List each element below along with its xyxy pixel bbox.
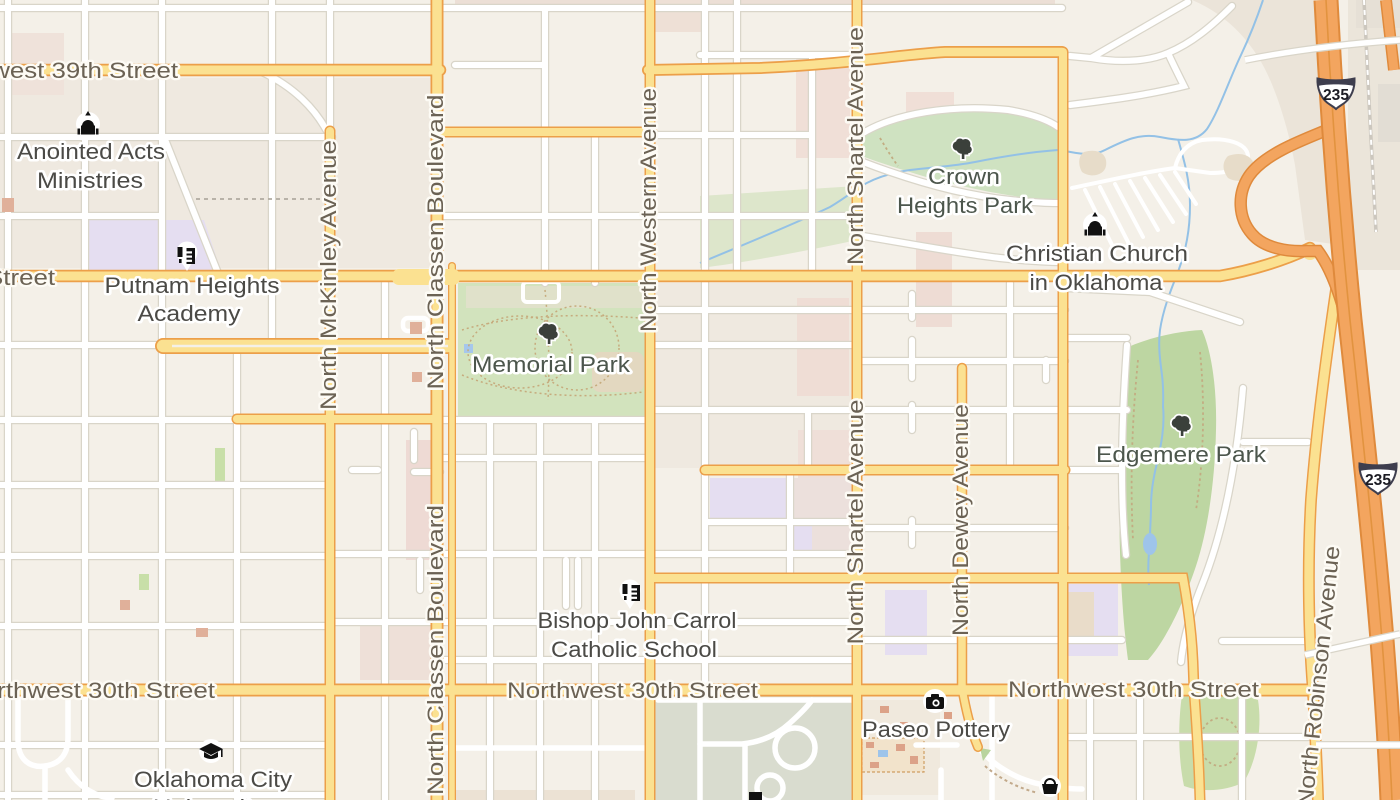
svg-text:Edgemere Park: Edgemere Park bbox=[1096, 442, 1267, 467]
svg-text:Catholic School: Catholic School bbox=[551, 637, 717, 662]
svg-text:Bishop John Carrol: Bishop John Carrol bbox=[538, 608, 737, 633]
svg-text:North McKinley Avenue: North McKinley Avenue bbox=[316, 140, 341, 410]
svg-text:Christian Church: Christian Church bbox=[1006, 241, 1188, 266]
svg-text:Northwest 30th Street: Northwest 30th Street bbox=[0, 678, 216, 703]
svg-text:in Oklahoma: in Oklahoma bbox=[1030, 270, 1164, 295]
svg-text:Memorial Park: Memorial Park bbox=[472, 352, 631, 377]
svg-text:Crown: Crown bbox=[928, 164, 1000, 189]
svg-text:Paseo Pottery: Paseo Pottery bbox=[862, 717, 1010, 742]
svg-text:Anointed Acts: Anointed Acts bbox=[17, 139, 165, 164]
svg-text:North Classen Boulevard: North Classen Boulevard bbox=[423, 95, 448, 390]
svg-text:Academy: Academy bbox=[138, 301, 241, 326]
svg-text:Heights Park: Heights Park bbox=[897, 193, 1034, 218]
svg-text:Northwest 36th Street: Northwest 36th Street bbox=[0, 265, 56, 290]
svg-text:Northwest 30th Street: Northwest 30th Street bbox=[1008, 677, 1260, 702]
svg-text:Ministries: Ministries bbox=[37, 168, 143, 193]
svg-text:Oklahoma City: Oklahoma City bbox=[134, 767, 292, 792]
svg-text:North Shartel Avenue: North Shartel Avenue bbox=[843, 27, 868, 265]
svg-text:Putnam Heights: Putnam Heights bbox=[105, 273, 280, 298]
svg-text:North Classen Boulevard: North Classen Boulevard bbox=[423, 505, 448, 795]
svg-text:North Western Avenue: North Western Avenue bbox=[636, 88, 661, 332]
svg-text:North Shartel Avenue: North Shartel Avenue bbox=[843, 400, 868, 645]
svg-text:North Dewey Avenue: North Dewey Avenue bbox=[948, 404, 973, 636]
svg-text:University: University bbox=[153, 795, 265, 800]
svg-text:Northwest 39th Street: Northwest 39th Street bbox=[0, 58, 179, 83]
svg-text:Northwest 30th Street: Northwest 30th Street bbox=[507, 678, 759, 703]
